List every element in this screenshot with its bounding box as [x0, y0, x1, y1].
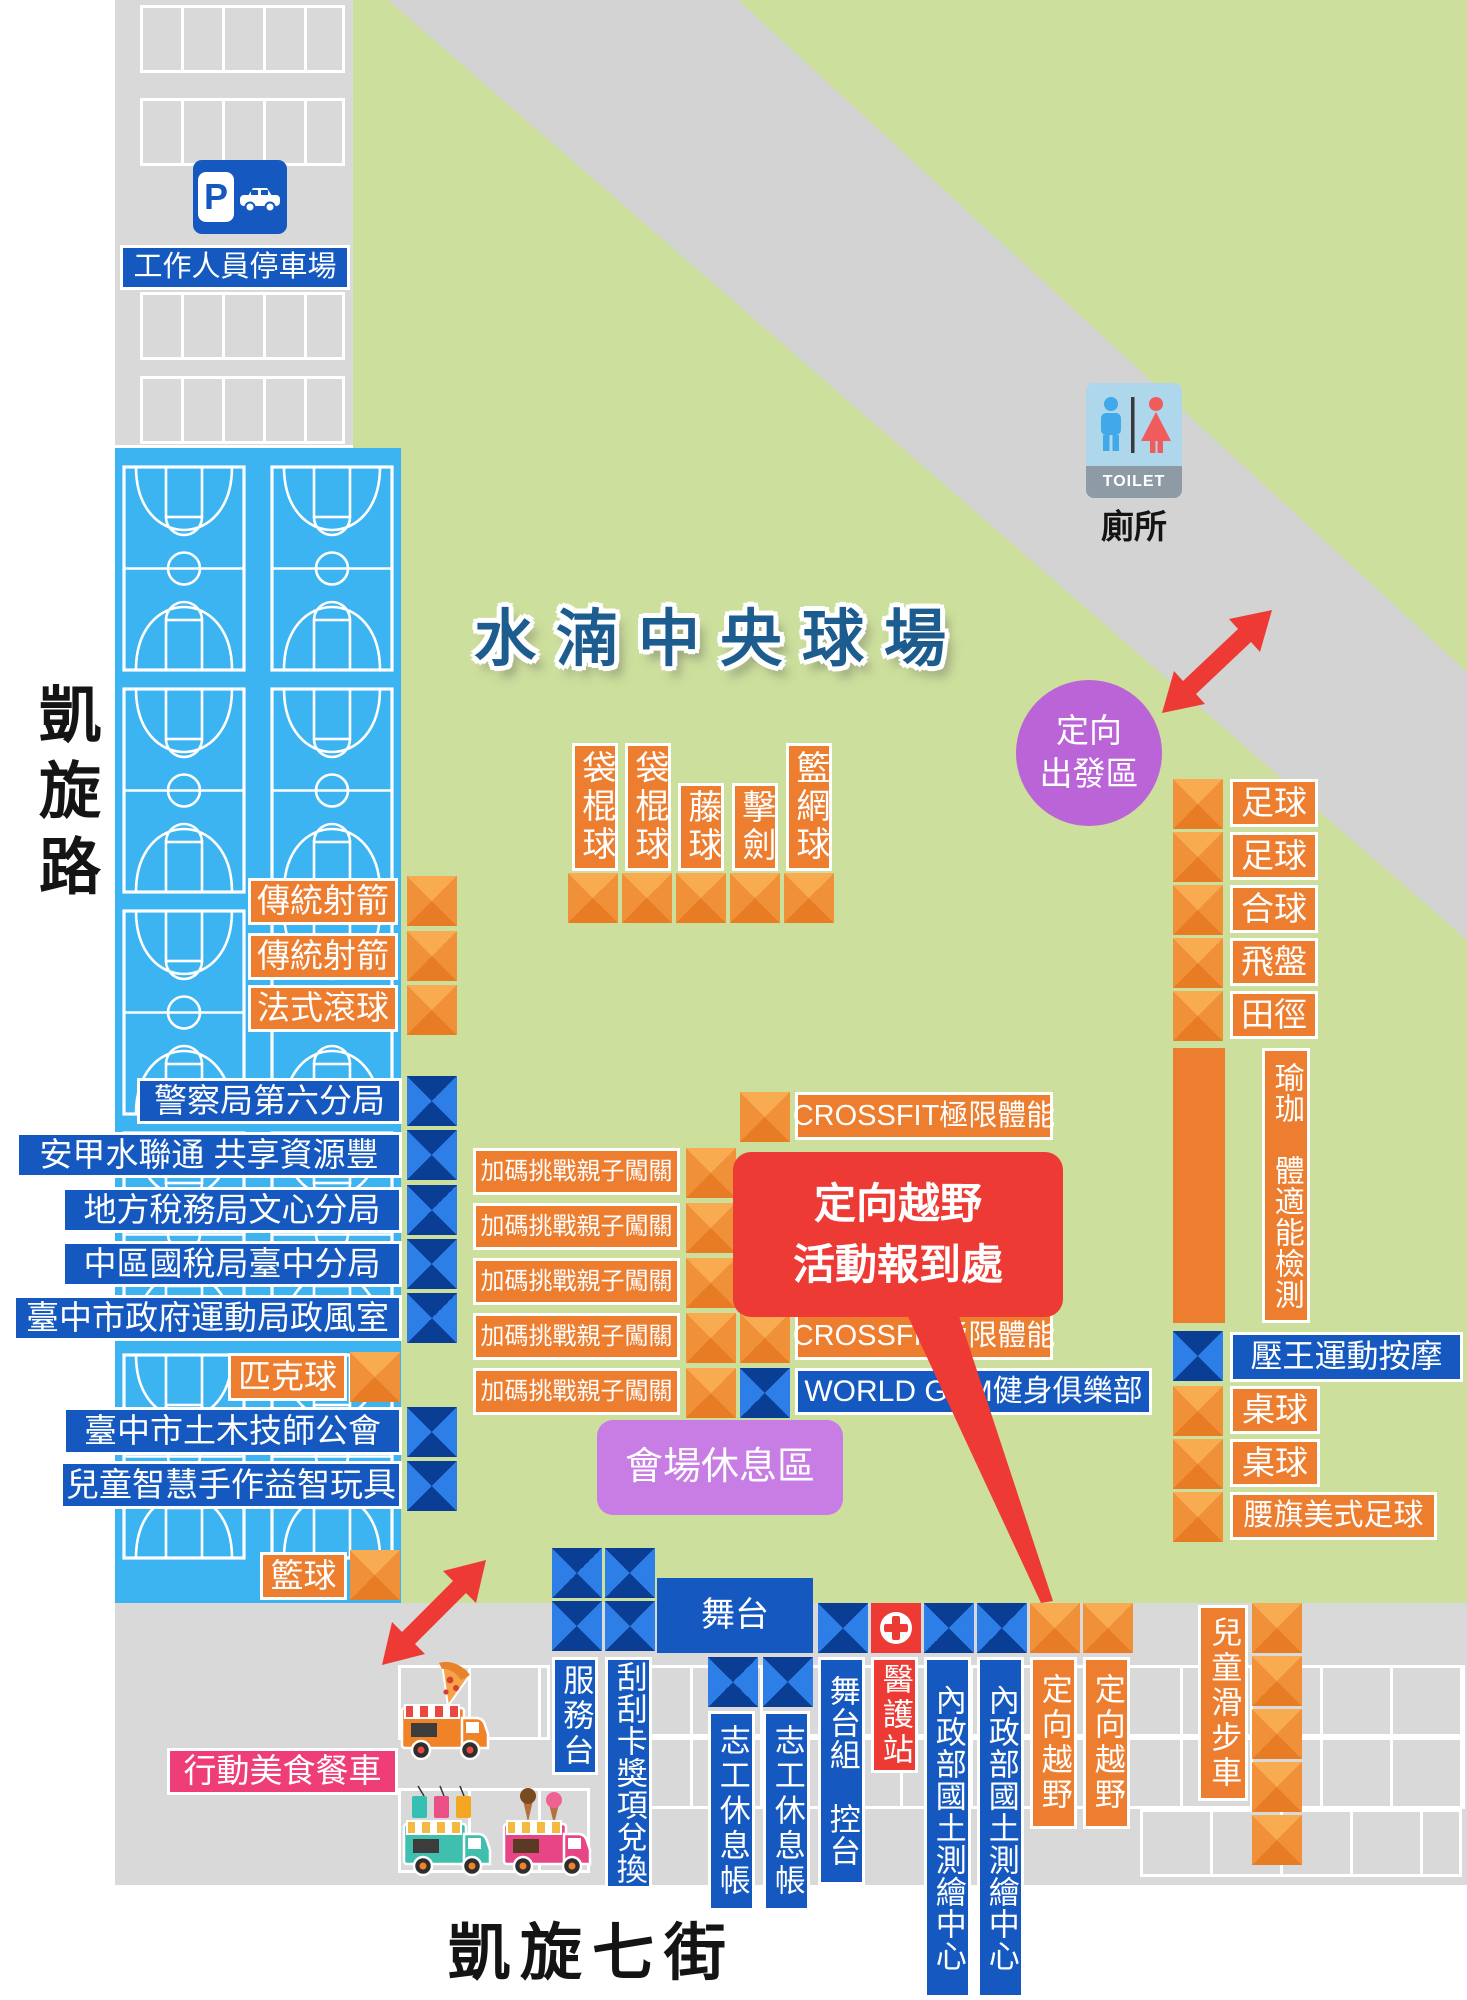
- tent-icon: [686, 1368, 736, 1418]
- tent-icon: [1030, 1603, 1080, 1653]
- tent-icon: [407, 1239, 457, 1289]
- tent-icon: [605, 1601, 655, 1651]
- booth-table-tennis-1: 桌球: [1230, 1386, 1320, 1434]
- checkin-line2: 活動報到處: [793, 1235, 1003, 1296]
- tent-icon: [407, 1461, 457, 1511]
- booth-lacrosse-2: 袋棍球: [625, 743, 671, 871]
- tent-icon: [1083, 1603, 1133, 1653]
- booth-water-resources: 安甲水聯通 共享資源豐: [16, 1132, 402, 1178]
- tent-icon: [350, 1550, 400, 1600]
- tent-icon: [1173, 938, 1223, 988]
- booth-petanque: 法式滾球: [248, 985, 398, 1032]
- checkin-line1: 定向越野: [814, 1174, 982, 1235]
- tent-icon: [740, 1368, 790, 1418]
- booth-yoga-fitness: 瑜珈 體適能檢測: [1262, 1048, 1310, 1323]
- road-name-bottom: 凱旋七街: [448, 1902, 736, 1992]
- booth-service-desk: 服務台: [552, 1657, 598, 1775]
- booth-orienteering-2: 定向越野: [1083, 1657, 1130, 1829]
- pizza-truck-icon: [398, 1660, 492, 1760]
- tent-icon: [1173, 1439, 1223, 1489]
- booth-police: 警察局第六分局: [137, 1078, 402, 1124]
- tent-icon: [740, 1092, 790, 1142]
- tent-icon: [1173, 832, 1223, 882]
- booth-civil-engineers: 臺中市土木技師公會: [63, 1407, 402, 1455]
- booth-basketball: 籃球: [260, 1552, 347, 1600]
- orienteering-start-zone: 定向 出發區: [1016, 680, 1162, 826]
- booth-massage: 壓王運動按摩: [1230, 1332, 1463, 1382]
- booth-volunteer-tent-1: 志工休息帳: [708, 1711, 755, 1911]
- tent-icon: [763, 1657, 813, 1707]
- tent-icon: [1252, 1815, 1302, 1865]
- staff-parking-label: 工作人員停車場: [120, 245, 350, 290]
- parking-sign-icon: P: [193, 160, 287, 234]
- booth-challenge-1: 加碼挑戰親子闖關: [473, 1148, 680, 1195]
- tent-icon: [1252, 1603, 1302, 1653]
- restroom-figures-icon: [1090, 393, 1178, 457]
- booth-netball: 籃網球: [786, 743, 832, 871]
- drink-truck-icon: [400, 1784, 494, 1878]
- tent-icon: [407, 1185, 457, 1235]
- tent-icon: [1173, 1386, 1223, 1436]
- booth-land-survey-2: 內政部國土測繪中心: [977, 1657, 1024, 1998]
- checkin-callout: 定向越野 活動報到處: [733, 1152, 1063, 1317]
- tent-icon: [1173, 1331, 1223, 1381]
- booth-challenge-3: 加碼挑戰親子闖關: [473, 1258, 680, 1305]
- yoga-fitness-area: [1173, 1048, 1225, 1323]
- tent-icon: [407, 1130, 457, 1180]
- booth-kids-bike: 兒童滑步車: [1198, 1605, 1248, 1801]
- tent-icon: [686, 1203, 736, 1253]
- tent-icon: [686, 1258, 736, 1308]
- toilet-sign-icon: TOILET: [1086, 383, 1182, 498]
- tent-icon: [407, 1407, 457, 1457]
- booth-volunteer-tent-2: 志工休息帳: [763, 1711, 810, 1911]
- parking-stalls: [140, 292, 345, 360]
- booth-national-tax: 中區國稅局臺中分局: [62, 1241, 402, 1287]
- parking-stalls: [140, 5, 345, 73]
- booth-world-gym: WORLD GYM健身俱樂部: [795, 1368, 1152, 1415]
- booth-land-survey-1: 內政部國土測繪中心: [924, 1657, 971, 1998]
- booth-frisbee: 飛盤: [1230, 938, 1318, 986]
- parking-stalls: [140, 376, 345, 444]
- tent-icon: [1173, 779, 1223, 829]
- tent-icon: [552, 1601, 602, 1651]
- tent-icon: [407, 876, 457, 926]
- ice-cream-truck-icon: [500, 1788, 594, 1878]
- booth-archery-2: 傳統射箭: [248, 933, 398, 980]
- booth-medical: 醫護站: [871, 1657, 918, 1773]
- tent-icon: [1173, 1492, 1223, 1542]
- booth-pickleball: 匹克球: [228, 1353, 347, 1401]
- tent-icon: [1252, 1762, 1302, 1812]
- booth-crossfit-bottom: CROSSFIT極限體能: [795, 1313, 1053, 1360]
- booth-orienteering-1: 定向越野: [1030, 1657, 1077, 1829]
- red-cross-icon: [871, 1603, 921, 1653]
- road-name-left: 凱旋路: [18, 682, 108, 910]
- booth-sepak-takraw: 藤球: [678, 783, 724, 871]
- venue-title: 水湳中央球場: [440, 588, 1000, 678]
- booth-challenge-4: 加碼挑戰親子闖關: [473, 1313, 680, 1360]
- tent-icon: [818, 1603, 868, 1653]
- booth-challenge-5: 加碼挑戰親子闖關: [473, 1368, 680, 1415]
- booth-stage-control: 舞台組 控台: [818, 1657, 865, 1885]
- tent-icon: [1173, 885, 1223, 935]
- tent-icon: [708, 1657, 758, 1707]
- booth-scratch-card: 刮刮卡獎項兌換: [605, 1657, 652, 1889]
- food-truck-label: 行動美食餐車: [167, 1748, 398, 1795]
- tent-icon: [977, 1603, 1027, 1653]
- stage-area: 舞台: [657, 1578, 813, 1653]
- booth-track: 田徑: [1230, 991, 1318, 1039]
- tent-icon: [1173, 991, 1223, 1041]
- booth-table-tennis-2: 桌球: [1230, 1439, 1320, 1487]
- booth-kids-toys: 兒童智慧手作益智玩具: [60, 1461, 402, 1509]
- tent-icon: [552, 1548, 602, 1598]
- tent-icon: [686, 1148, 736, 1198]
- tent-icon: [407, 931, 457, 981]
- booth-soccer-1: 足球: [1230, 779, 1318, 827]
- booth-crossfit-top: CROSSFIT極限體能: [795, 1092, 1053, 1140]
- booth-fencing: 擊劍: [732, 783, 778, 871]
- booth-korfball: 合球: [1230, 885, 1318, 933]
- tent-icon: [1252, 1656, 1302, 1706]
- tent-icon: [407, 985, 457, 1035]
- tent-icon: [622, 873, 672, 923]
- toilet-sign-text: TOILET: [1086, 466, 1182, 498]
- toilet-label: 廁所: [1086, 500, 1182, 540]
- event-map: P 工作人員停車場 TOILET: [0, 0, 1467, 2000]
- tent-icon: [1252, 1709, 1302, 1759]
- booth-local-tax: 地方稅務局文心分局: [62, 1187, 402, 1233]
- tent-icon: [924, 1603, 974, 1653]
- tent-icon: [407, 1076, 457, 1126]
- booth-soccer-2: 足球: [1230, 832, 1318, 880]
- medical-tent-icon: [871, 1603, 921, 1653]
- rest-area: 會場休息區: [597, 1420, 843, 1515]
- tent-icon: [686, 1313, 736, 1363]
- tent-icon: [568, 873, 618, 923]
- p-letter: P: [198, 172, 234, 222]
- car-icon: [238, 182, 282, 212]
- tent-icon: [605, 1548, 655, 1598]
- tent-icon: [740, 1313, 790, 1363]
- start-zone-line1: 定向: [1056, 710, 1122, 753]
- booth-sports-bureau: 臺中市政府運動局政風室: [13, 1295, 402, 1341]
- tent-icon: [407, 1293, 457, 1343]
- tent-icon: [350, 1352, 400, 1402]
- booth-challenge-2: 加碼挑戰親子闖關: [473, 1203, 680, 1250]
- booth-lacrosse-1: 袋棍球: [572, 743, 618, 871]
- start-zone-line2: 出發區: [1040, 753, 1139, 796]
- booth-archery-1: 傳統射箭: [248, 878, 398, 925]
- parking-stalls: [140, 98, 345, 166]
- booth-flag-football: 腰旗美式足球: [1230, 1492, 1437, 1540]
- tent-icon: [676, 873, 726, 923]
- tent-icon: [784, 873, 834, 923]
- tent-icon: [730, 873, 780, 923]
